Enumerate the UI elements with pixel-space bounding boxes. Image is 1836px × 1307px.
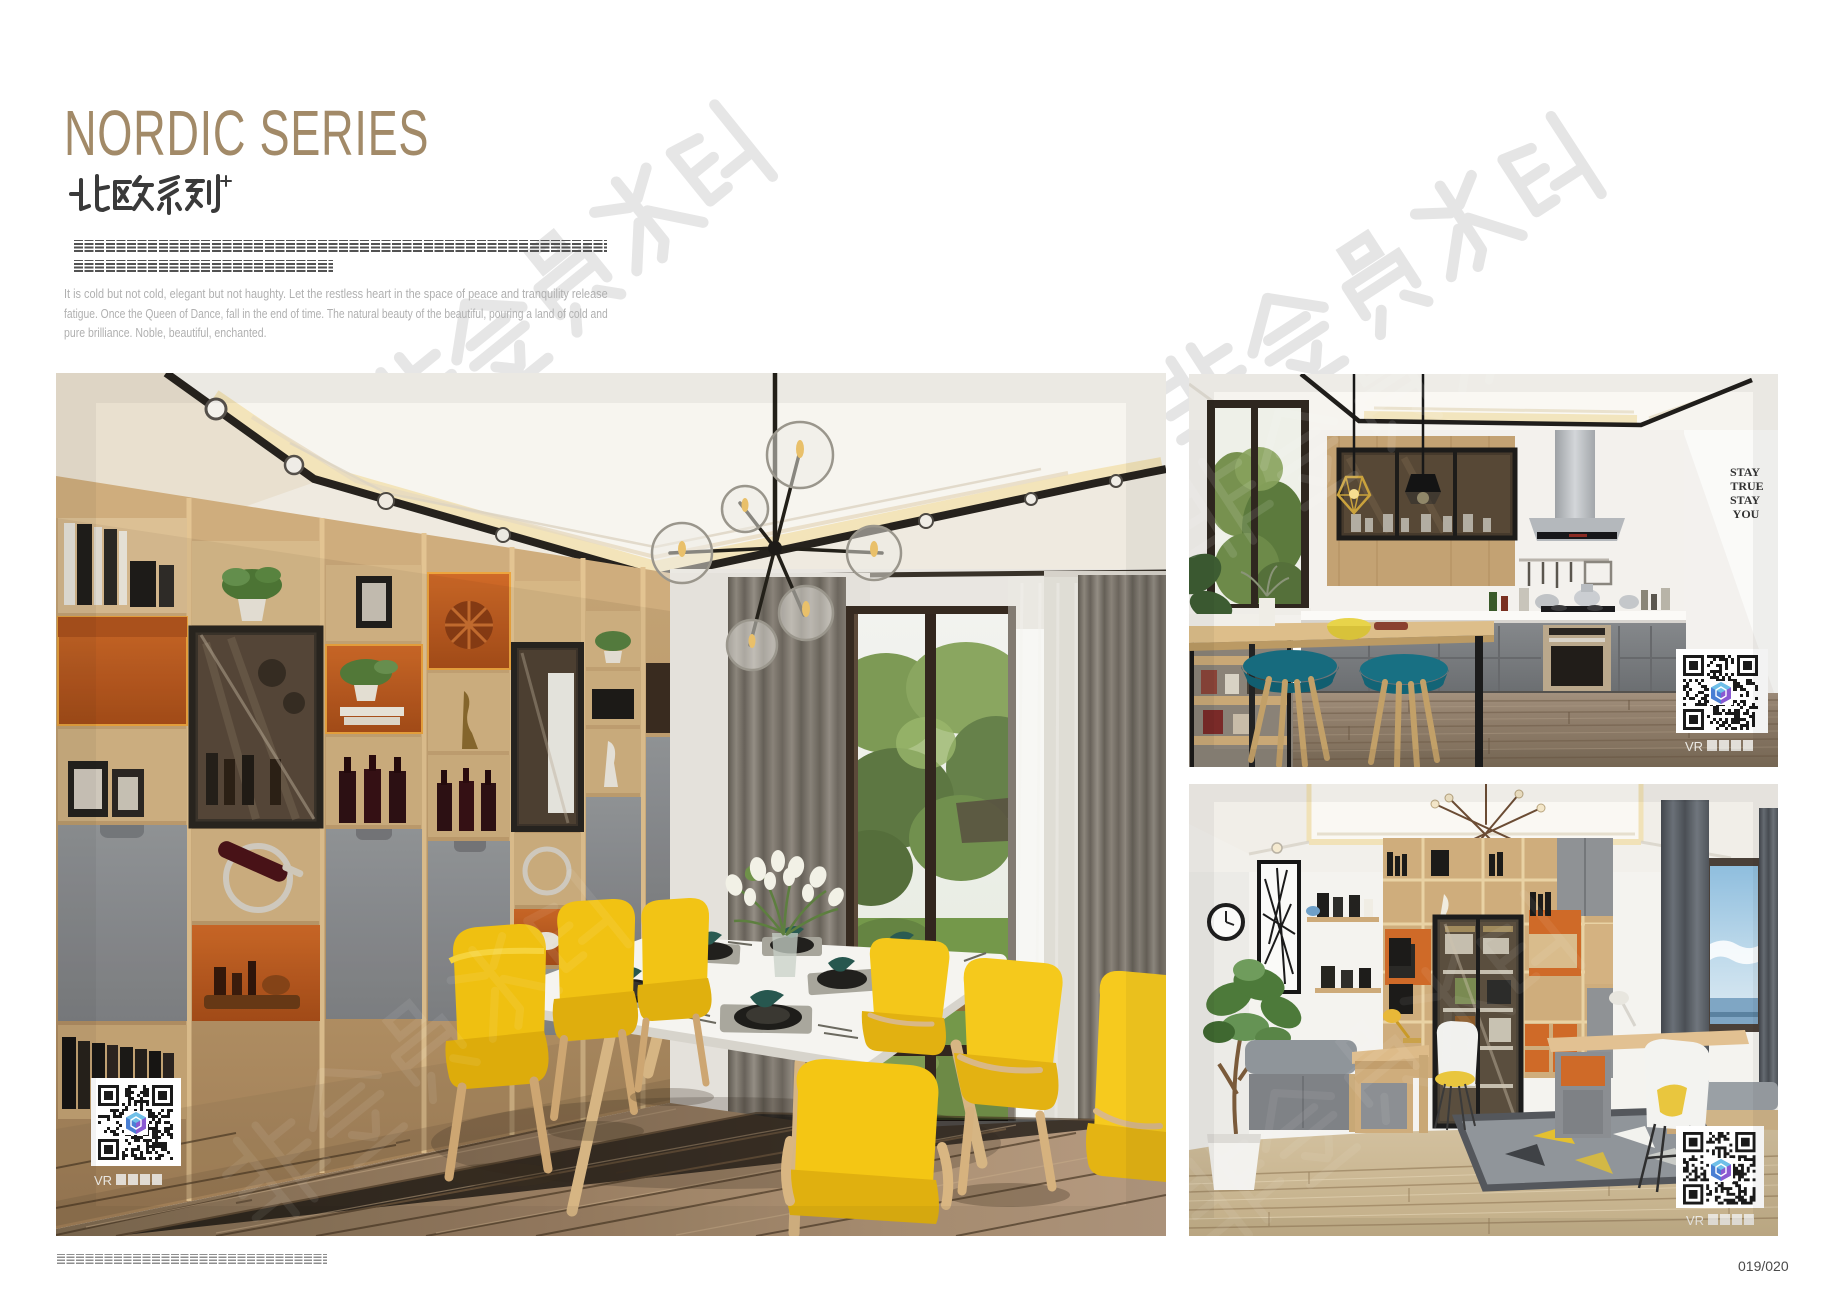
- svg-text:VR: VR: [94, 1173, 112, 1188]
